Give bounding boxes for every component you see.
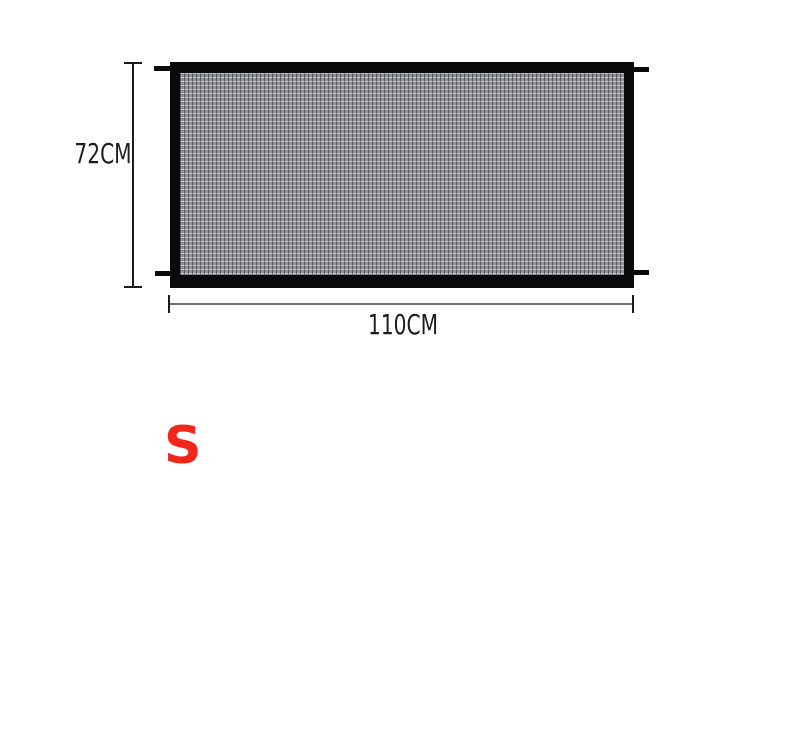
height-dimension-line xyxy=(132,62,134,288)
mesh-gate-illustration xyxy=(170,62,634,288)
gate-mounting-pin-top-left xyxy=(154,66,170,71)
width-dimension-tick-right xyxy=(632,295,634,313)
gate-mounting-pin-bottom-left xyxy=(155,271,171,276)
height-dimension-cap-bottom xyxy=(124,286,142,288)
width-dimension-line xyxy=(168,303,634,305)
gate-mesh-panel xyxy=(180,73,624,275)
product-size-diagram: 72CM 110CM S xyxy=(0,0,787,738)
gate-mounting-pin-top-right xyxy=(633,67,649,72)
width-dimension-tick-left xyxy=(168,295,170,313)
height-dimension-label: 72CM xyxy=(60,141,146,167)
height-dimension-cap-top xyxy=(124,62,142,64)
size-option-label: S xyxy=(164,420,201,472)
width-dimension-label: 110CM xyxy=(356,312,450,338)
gate-mounting-pin-bottom-right xyxy=(633,270,649,275)
